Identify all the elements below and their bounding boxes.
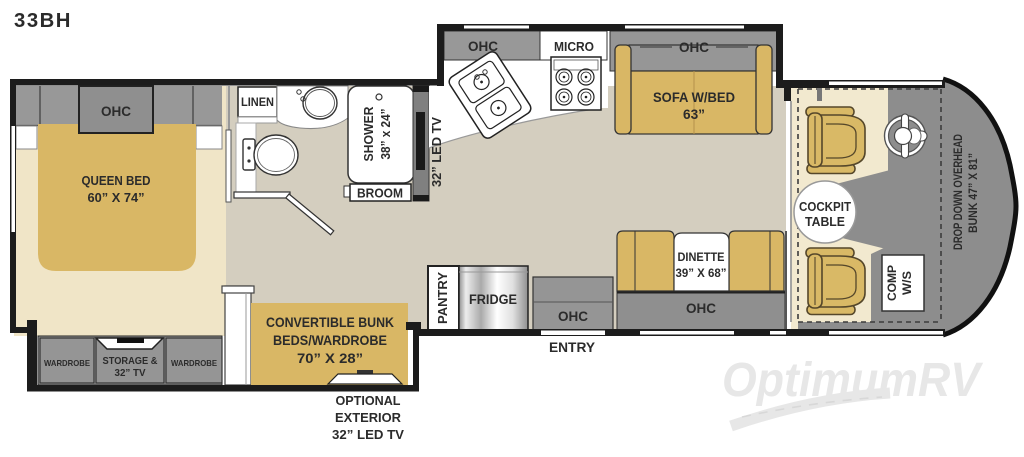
svg-text:CONVERTIBLE BUNK: CONVERTIBLE BUNK	[266, 314, 394, 330]
svg-text:OHC: OHC	[101, 104, 131, 119]
svg-text:60” X 74”: 60” X 74”	[88, 190, 145, 205]
svg-text:33BH: 33BH	[14, 10, 72, 32]
svg-text:COCKPIT: COCKPIT	[799, 200, 851, 214]
svg-text:OHC: OHC	[686, 301, 716, 316]
svg-text:EXTERIOR: EXTERIOR	[335, 410, 402, 425]
svg-text:70” X 28”: 70” X 28”	[297, 350, 363, 366]
svg-text:PANTRY: PANTRY	[436, 271, 450, 324]
svg-text:COMP: COMP	[885, 265, 899, 301]
svg-text:32” TV: 32” TV	[115, 367, 146, 379]
svg-text:39” X 68”: 39” X 68”	[676, 266, 727, 280]
svg-text:FRIDGE: FRIDGE	[469, 292, 517, 307]
svg-text:DROP DOWN OVERHEAD: DROP DOWN OVERHEAD	[953, 134, 965, 250]
svg-text:SHOWER: SHOWER	[362, 107, 376, 162]
svg-text:63”: 63”	[683, 107, 705, 122]
svg-text:LINEN: LINEN	[241, 97, 274, 109]
svg-text:OPTIONAL: OPTIONAL	[336, 393, 401, 408]
svg-text:W/S: W/S	[900, 271, 914, 295]
svg-text:QUEEN BED: QUEEN BED	[82, 173, 151, 188]
svg-text:BROOM: BROOM	[357, 187, 403, 201]
svg-text:MICRO: MICRO	[554, 39, 594, 54]
svg-text:BEDS/WARDROBE: BEDS/WARDROBE	[273, 332, 387, 348]
svg-text:ENTRY: ENTRY	[549, 340, 595, 355]
svg-text:DINETTE: DINETTE	[678, 250, 725, 264]
svg-text:BUNK 47” X 81”: BUNK 47” X 81”	[968, 153, 980, 233]
svg-text:WARDROBE: WARDROBE	[171, 358, 217, 368]
svg-text:WARDROBE: WARDROBE	[44, 358, 90, 368]
svg-text:TABLE: TABLE	[805, 215, 845, 229]
svg-text:32” LED TV: 32” LED TV	[332, 427, 404, 442]
svg-text:38” x 24”: 38” x 24”	[379, 109, 393, 160]
svg-text:OHC: OHC	[558, 309, 588, 324]
svg-text:OHC: OHC	[679, 40, 709, 55]
svg-text:32” LED TV: 32” LED TV	[429, 117, 444, 187]
svg-text:SOFA W/BED: SOFA W/BED	[653, 90, 735, 105]
svg-text:STORAGE &: STORAGE &	[103, 355, 158, 367]
